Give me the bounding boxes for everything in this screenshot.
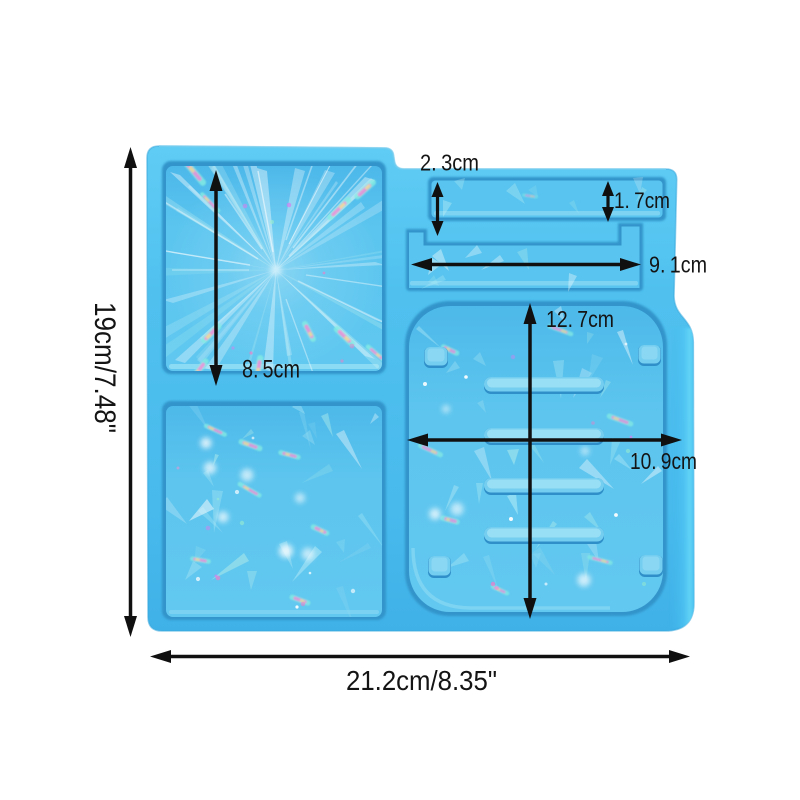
svg-text:21.2cm/8.35": 21.2cm/8.35" [346, 665, 497, 696]
svg-text:19cm/7.48": 19cm/7.48" [88, 302, 121, 433]
svg-text:8.5cm: 8.5cm [242, 356, 300, 384]
svg-text:1.7cm: 1.7cm [614, 188, 670, 213]
svg-text:9.1cm: 9.1cm [649, 252, 707, 278]
svg-text:2.3cm: 2.3cm [420, 150, 479, 176]
svg-text:10.9cm: 10.9cm [630, 448, 697, 474]
svg-text:12.7cm: 12.7cm [546, 306, 614, 332]
